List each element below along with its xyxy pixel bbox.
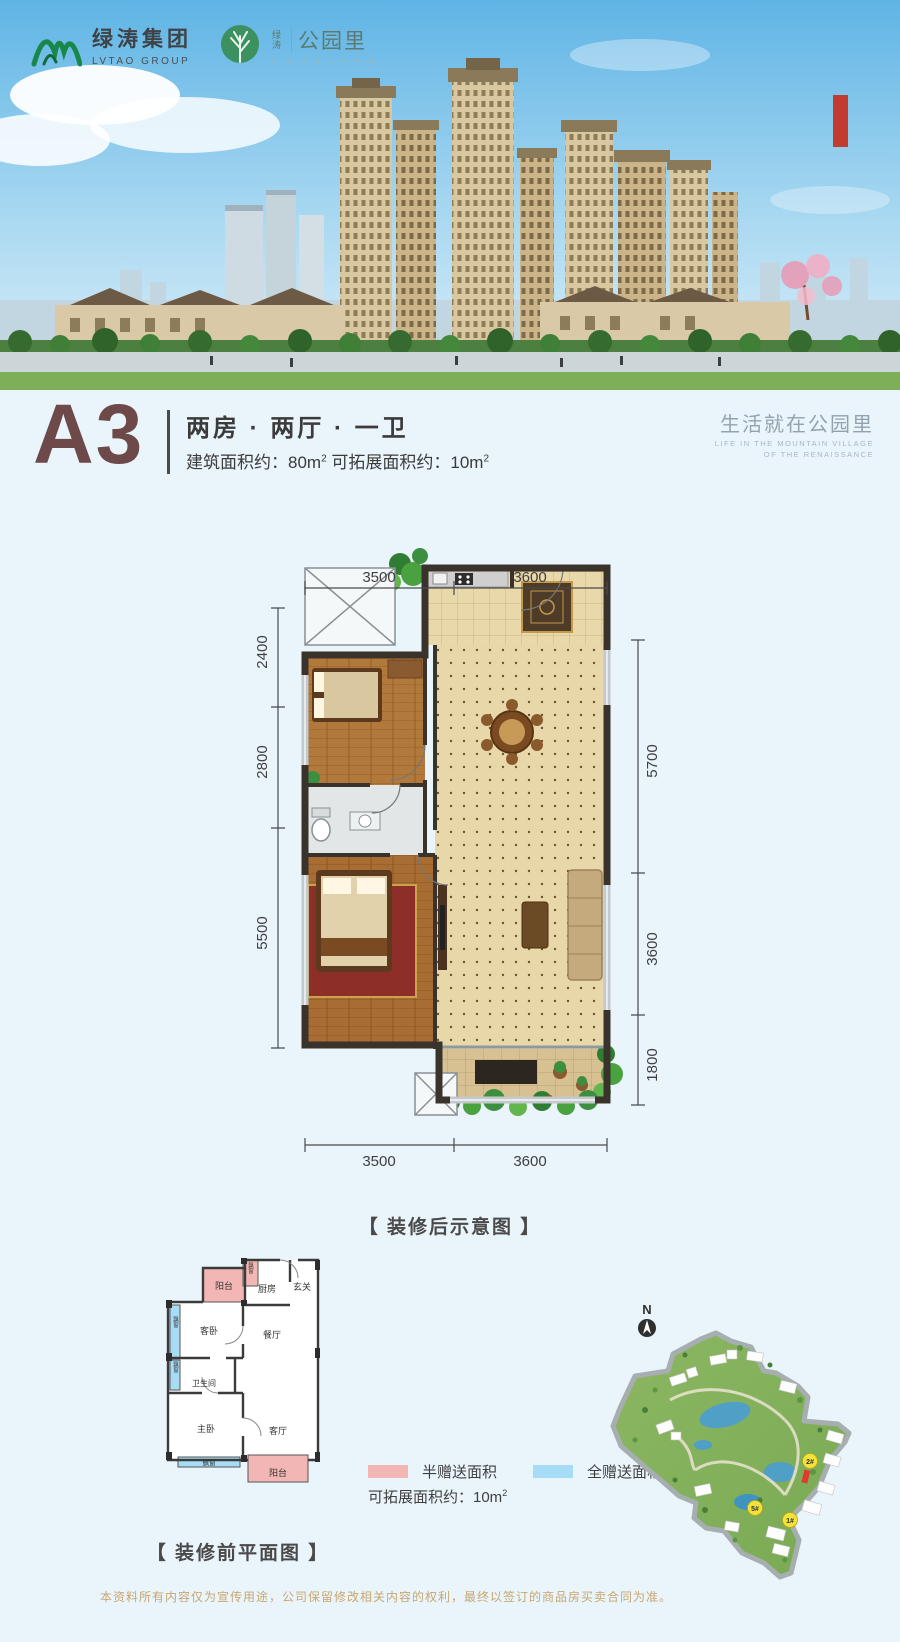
caption-decorated-plan: 【 装修后示意图 】 <box>0 1212 900 1239</box>
svg-text:2400: 2400 <box>254 635 271 668</box>
brand-logos: 绿涛集团 LVTAO GROUP 绿涛 公园里 P A R K L I F E <box>30 22 378 68</box>
logo2-divider <box>291 27 292 53</box>
tree-icon <box>218 22 262 68</box>
svg-text:2800: 2800 <box>254 745 271 778</box>
title-divider <box>167 410 170 474</box>
parklife-logo: 绿涛 公园里 P A R K L I F E <box>218 22 378 68</box>
compass: N <box>638 1302 656 1337</box>
pavement <box>0 352 900 374</box>
red-banner <box>833 95 848 147</box>
svg-text:卫生间: 卫生间 <box>192 1378 216 1388</box>
hero-rendering: 绿涛集团 LVTAO GROUP 绿涛 公园里 P A R K L I F E <box>0 0 900 390</box>
decorated-floorplan: 3500 3600 3500 3600 2400 2800 5500 5700 … <box>250 540 680 1190</box>
logo1-cn: 绿涛集团 <box>92 23 192 53</box>
unit-code: A3 <box>33 392 144 476</box>
mountain-icon <box>30 22 82 68</box>
unit-layout: 两房 · 两厅 · 一卫 <box>186 408 409 443</box>
svg-text:厨房: 厨房 <box>258 1283 276 1294</box>
svg-text:3500: 3500 <box>362 569 395 586</box>
slogan-en: LIFE IN THE MOUNTAIN VILLAGE OF THE RENA… <box>715 438 874 461</box>
svg-text:N: N <box>642 1302 651 1317</box>
svg-text:阳台: 阳台 <box>215 1280 233 1291</box>
slogan-en-line1: LIFE IN THE MOUNTAIN VILLAGE <box>715 438 874 449</box>
legend-half-swatch <box>368 1465 408 1478</box>
area-part1: 建筑面积约：80m <box>186 453 321 472</box>
svg-text:1800: 1800 <box>644 1048 661 1081</box>
unit-area: 建筑面积约：80m2 可拓展面积约：10m2 <box>186 448 489 473</box>
svg-text:客厅: 客厅 <box>269 1425 287 1436</box>
legend-half-label: 半赠送面积 <box>422 1461 497 1482</box>
disclaimer-text: 本资料所有内容仅为宣传用途，公司保留修改相关内容的权利，最终以签订的商品房买卖合… <box>100 1588 672 1605</box>
svg-text:5700: 5700 <box>644 744 661 777</box>
plain-floorplan: 阳台 厨房 玄关 客卧 餐厅 卫生间 主卧 客厅 阳台 飘窗 飘窗 飘窗 飘窗 <box>130 1248 345 1493</box>
logo2-prefix: 绿涛 <box>272 30 285 51</box>
logo2-en: P A R K L I F E <box>272 58 378 65</box>
logo2-cn: 公园里 <box>298 25 367 55</box>
svg-text:餐厅: 餐厅 <box>263 1329 281 1340</box>
svg-text:2#: 2# <box>806 1459 814 1466</box>
logo1-en: LVTAO GROUP <box>92 56 192 67</box>
svg-text:飘窗: 飘窗 <box>247 1262 254 1275</box>
legend-full-swatch <box>533 1465 573 1478</box>
area-sup2: 2 <box>483 453 489 464</box>
svg-text:3600: 3600 <box>513 1153 546 1170</box>
svg-text:主卧: 主卧 <box>197 1423 215 1434</box>
svg-text:3600: 3600 <box>513 569 546 586</box>
svg-text:阳台: 阳台 <box>269 1467 287 1478</box>
expand-text: 可拓展面积约：10m <box>368 1489 502 1506</box>
room-floors <box>305 568 607 1100</box>
svg-text:3500: 3500 <box>362 1153 395 1170</box>
svg-text:飘窗: 飘窗 <box>172 1361 179 1374</box>
caption-plain-plan: 【 装修前平面图 】 <box>118 1538 358 1565</box>
svg-text:玄关: 玄关 <box>293 1281 311 1292</box>
lvtao-group-logo: 绿涛集团 LVTAO GROUP <box>30 22 192 68</box>
area-part2: 可拓展面积约：10m <box>327 453 484 472</box>
svg-text:5500: 5500 <box>254 916 271 949</box>
svg-text:飘窗: 飘窗 <box>172 1316 179 1329</box>
svg-text:5#: 5# <box>751 1506 759 1513</box>
svg-text:飘窗: 飘窗 <box>203 1458 216 1467</box>
expand-sup: 2 <box>502 1488 507 1498</box>
slogan-en-line2: OF THE RENAISSANCE <box>715 449 874 460</box>
svg-text:客卧: 客卧 <box>200 1325 218 1336</box>
expandable-area-note: 可拓展面积约：10m2 <box>368 1486 507 1507</box>
slogan-cn: 生活就在公园里 <box>720 408 874 437</box>
siteplan: N <box>575 1240 900 1585</box>
svg-text:3600: 3600 <box>644 932 661 965</box>
poster-page: 绿涛集团 LVTAO GROUP 绿涛 公园里 P A R K L I F E <box>0 0 900 1642</box>
svg-text:1#: 1# <box>786 1518 794 1525</box>
